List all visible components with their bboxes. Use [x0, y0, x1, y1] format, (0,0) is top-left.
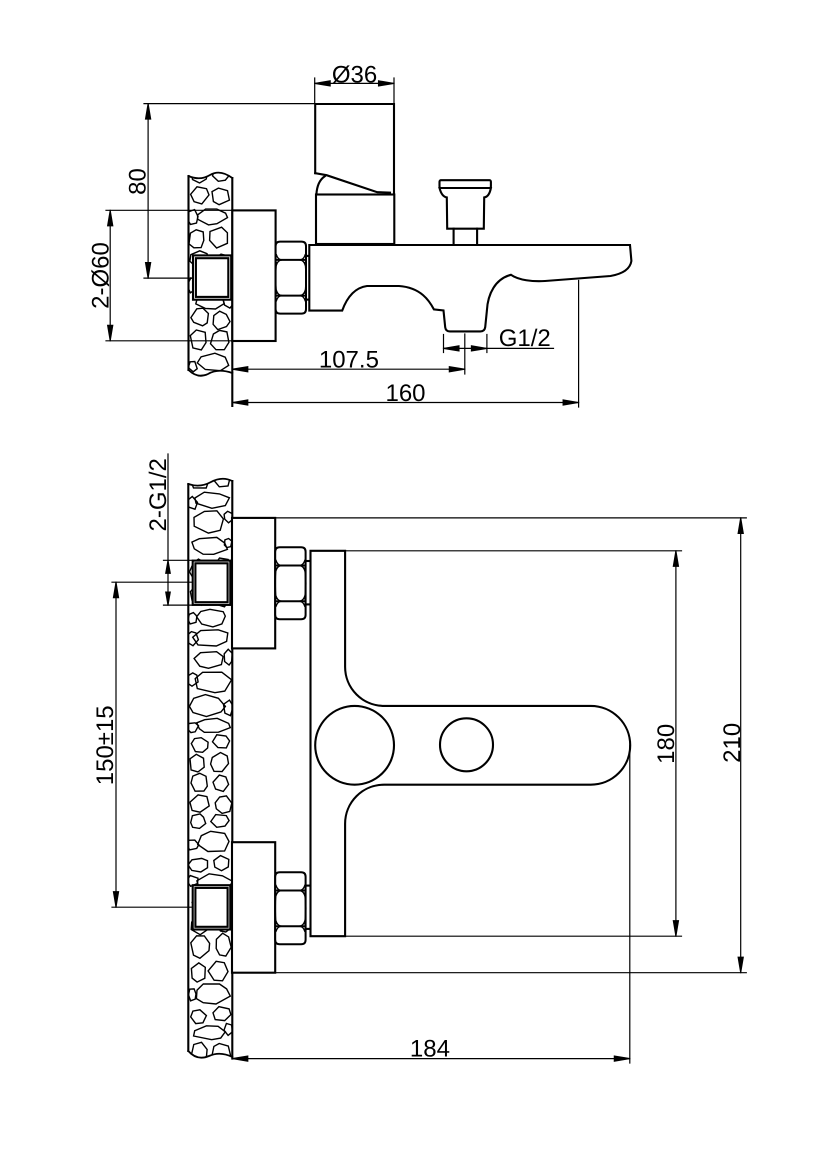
svg-text:Ø36: Ø36 [332, 62, 377, 89]
svg-text:107.5: 107.5 [319, 347, 379, 374]
svg-text:80: 80 [125, 168, 152, 195]
svg-text:150±15: 150±15 [92, 705, 119, 785]
svg-text:G1/2: G1/2 [499, 325, 551, 352]
svg-text:2-Ø60: 2-Ø60 [88, 242, 115, 309]
svg-text:184: 184 [410, 1036, 450, 1063]
svg-text:210: 210 [719, 723, 746, 763]
svg-text:2-G1/2: 2-G1/2 [145, 458, 172, 531]
svg-text:160: 160 [385, 380, 425, 407]
svg-text:180: 180 [653, 724, 680, 764]
